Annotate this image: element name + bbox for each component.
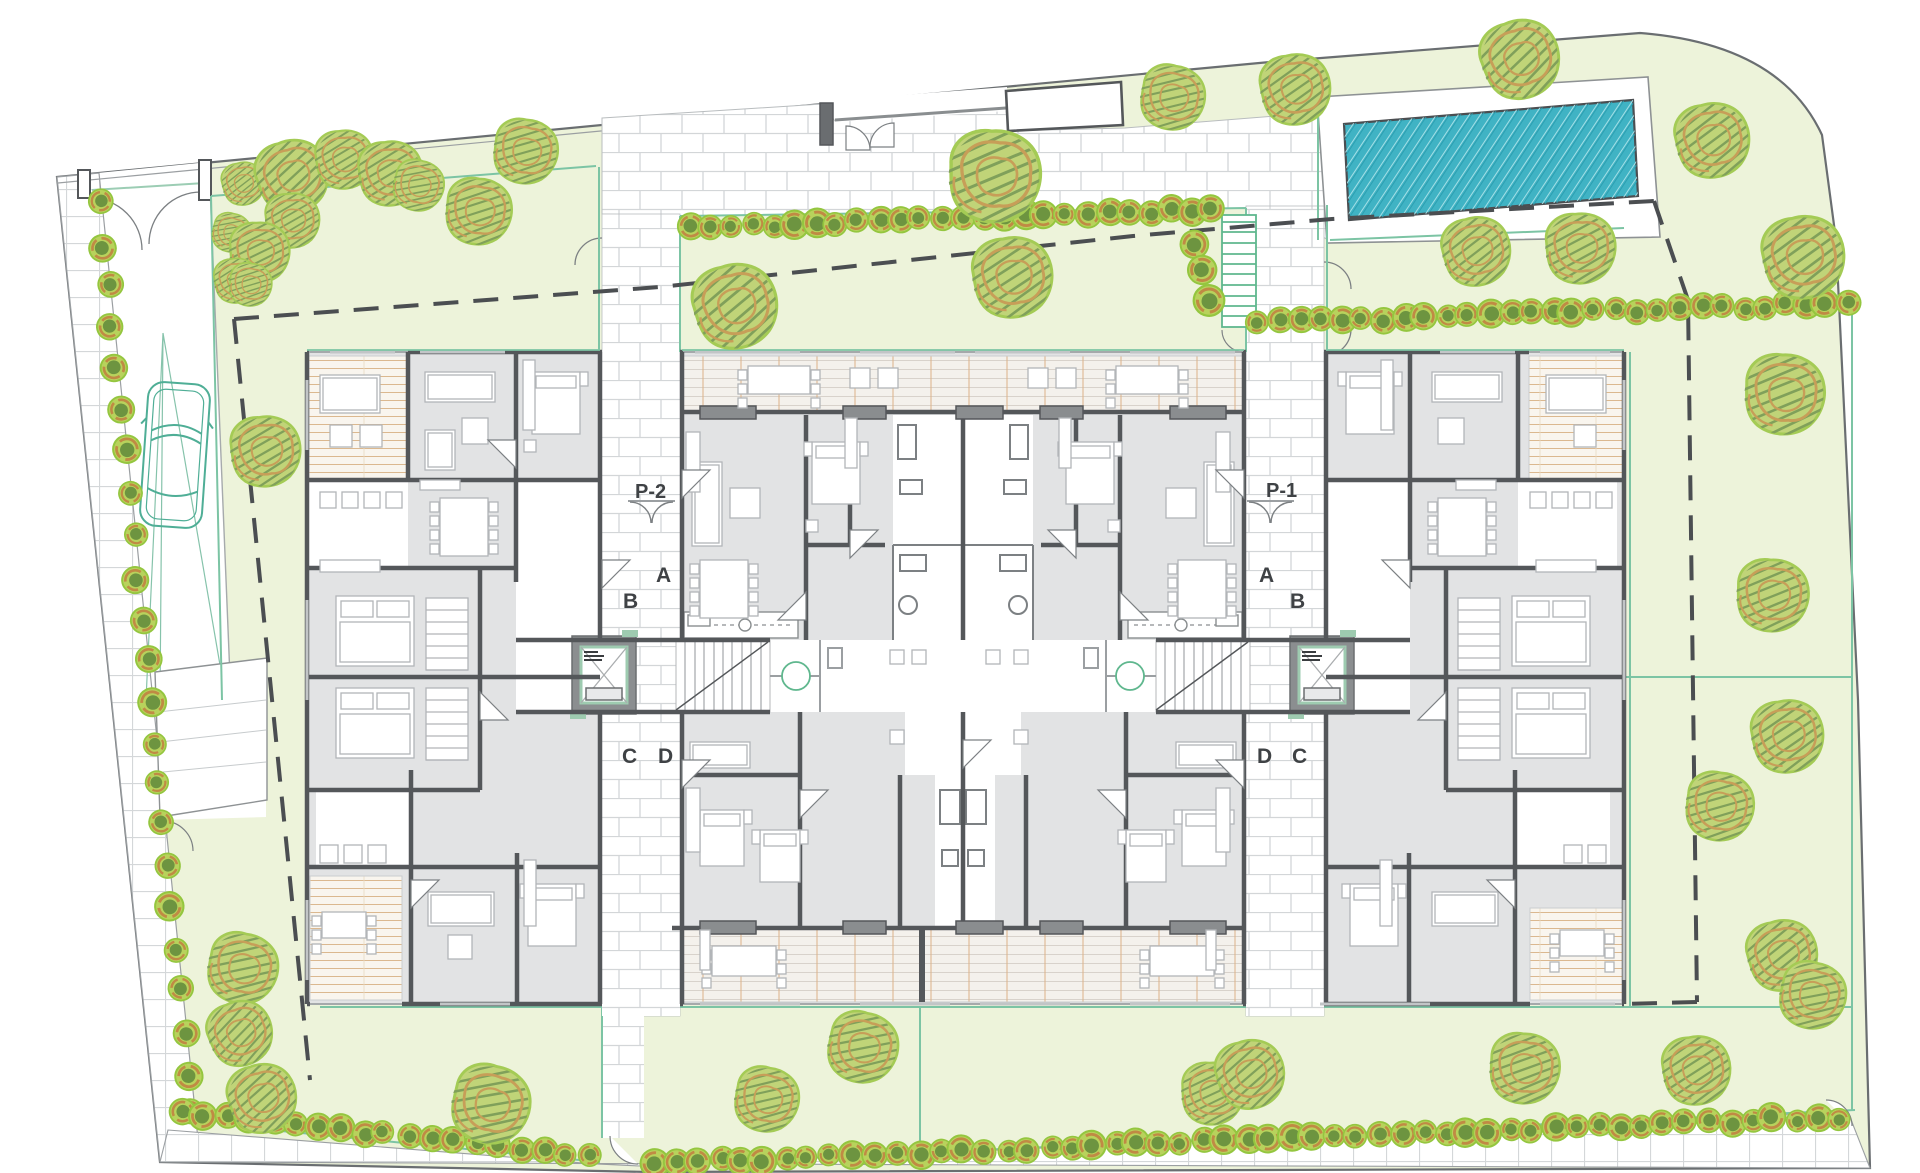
svg-text:P-2: P-2 xyxy=(635,481,666,503)
svg-text:B: B xyxy=(623,590,638,613)
svg-text:C: C xyxy=(1292,745,1307,768)
svg-text:D: D xyxy=(658,745,673,768)
svg-text:P-1: P-1 xyxy=(1266,480,1297,502)
svg-text:A: A xyxy=(1259,564,1274,587)
svg-text:A: A xyxy=(656,564,671,587)
svg-text:C: C xyxy=(622,745,637,768)
svg-text:B: B xyxy=(1290,590,1305,613)
svg-text:D: D xyxy=(1257,745,1272,768)
